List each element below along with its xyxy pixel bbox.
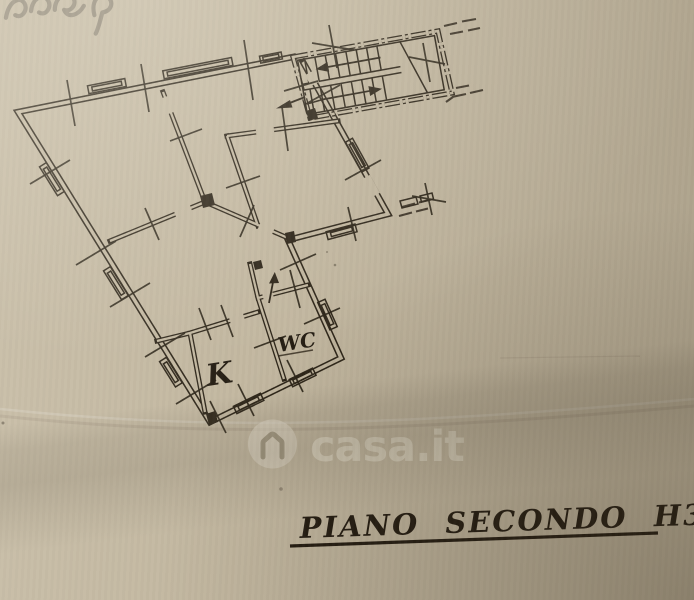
watermark: casa.it [248, 420, 464, 473]
paper-creases [0, 356, 694, 430]
floor-plan-drawing: K WC casa.it PIANO SECONDO H3.00 [0, 0, 694, 600]
direction-arrow-icon [269, 272, 279, 303]
scanned-floor-plan-photo: K WC casa.it PIANO SECONDO H3.00 [0, 0, 694, 600]
watermark-logo-circle [248, 420, 297, 469]
room-label-kitchen: K [203, 355, 237, 394]
dashed-continuation-marks [399, 19, 483, 216]
watermark-brand-text: casa.it [310, 422, 464, 472]
stair-steps [298, 36, 445, 115]
floor-caption: PIANO SECONDO H3.00 [290, 496, 694, 546]
pencil-scribble [6, 0, 111, 34]
